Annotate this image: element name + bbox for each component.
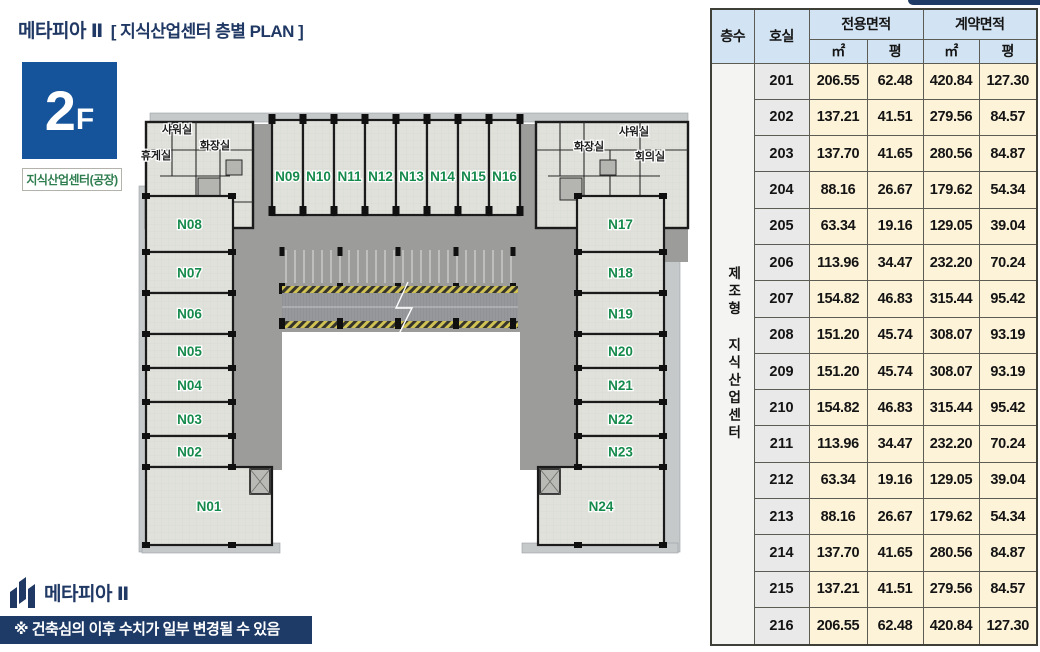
table-row: 211113.9634.47232.2070.24	[711, 426, 1037, 462]
table-row: 20563.3419.16129.0539.04	[711, 208, 1037, 244]
column	[331, 206, 338, 216]
room-label-N07: N07	[177, 266, 202, 281]
exclusive-m2-cell: 63.34	[809, 208, 867, 244]
room-label-N15: N15	[461, 169, 486, 184]
room-label-N24: N24	[589, 499, 614, 514]
room-label-N09: N09	[275, 169, 300, 184]
ramp-post	[395, 318, 401, 329]
column	[574, 542, 582, 548]
col-header-exclusive-pyeong: 평	[867, 39, 923, 63]
room-number-cell: 216	[754, 607, 809, 645]
room-number-cell: 203	[754, 136, 809, 172]
room-number-cell: 206	[754, 244, 809, 280]
facility-label-left-0: 샤워실	[162, 122, 192, 136]
column	[659, 365, 667, 371]
room-label-N12: N12	[368, 169, 393, 184]
table-row: 208151.2045.74308.0793.19	[711, 317, 1037, 353]
column	[228, 290, 236, 296]
ramp-post	[396, 247, 401, 256]
exclusive-pyeong-cell: 41.51	[867, 99, 923, 135]
room-label-N20: N20	[608, 344, 633, 359]
ramp-post	[279, 318, 285, 329]
column	[574, 399, 582, 405]
exclusive-pyeong-cell: 41.51	[867, 571, 923, 607]
col-header-exclusive-m2: ㎡	[809, 39, 867, 63]
facility-label-left-2: 휴게실	[141, 148, 171, 162]
contract-pyeong-cell: 84.57	[979, 99, 1037, 135]
contract-m2-cell: 308.07	[923, 353, 979, 389]
column	[142, 433, 150, 439]
exclusive-pyeong-cell: 46.83	[867, 390, 923, 426]
room-label-N19: N19	[608, 307, 633, 322]
exclusive-m2-cell: 113.96	[809, 426, 867, 462]
room-number-cell: 207	[754, 281, 809, 317]
column	[659, 464, 667, 470]
exclusive-m2-cell: 151.20	[809, 353, 867, 389]
table-row: 202137.2141.51279.5684.57	[711, 99, 1037, 135]
column	[142, 331, 150, 337]
table-row: 207154.8246.83315.4495.42	[711, 281, 1037, 317]
contract-m2-cell: 315.44	[923, 281, 979, 317]
column	[142, 542, 150, 548]
contract-m2-cell: 279.56	[923, 571, 979, 607]
col-header-contract-pyeong: 평	[979, 39, 1037, 63]
room-N13	[396, 120, 427, 215]
column	[517, 206, 524, 216]
room-number-cell: 211	[754, 426, 809, 462]
column	[300, 206, 307, 216]
column	[393, 206, 400, 216]
footer-logo-text: 메타피아 Ⅱ	[44, 579, 129, 606]
exclusive-pyeong-cell: 62.48	[867, 63, 923, 99]
exclusive-m2-cell: 137.21	[809, 99, 867, 135]
footer-logo: 메타피아 Ⅱ	[10, 577, 129, 608]
column	[574, 193, 582, 199]
room-number-cell: 209	[754, 353, 809, 389]
room-label-N01: N01	[197, 499, 222, 514]
table-row: 214137.7041.65280.5684.87	[711, 535, 1037, 571]
contract-pyeong-cell: 84.87	[979, 535, 1037, 571]
ramp-post	[510, 318, 516, 329]
room-label-N17: N17	[608, 217, 633, 232]
floor-type-vertical-label: 제조형 지식산업센터	[711, 63, 754, 645]
contract-pyeong-cell: 93.19	[979, 317, 1037, 353]
contract-pyeong-cell: 39.04	[979, 208, 1037, 244]
exclusive-pyeong-cell: 26.67	[867, 172, 923, 208]
column	[424, 206, 431, 216]
column	[142, 365, 150, 371]
exclusive-m2-cell: 63.34	[809, 462, 867, 498]
exclusive-m2-cell: 137.70	[809, 136, 867, 172]
contract-pyeong-cell: 127.30	[979, 63, 1037, 99]
contract-m2-cell: 315.44	[923, 390, 979, 426]
room-N12	[365, 120, 396, 215]
exclusive-pyeong-cell: 41.65	[867, 136, 923, 172]
column	[659, 433, 667, 439]
column	[393, 114, 400, 124]
room-label-N08: N08	[177, 217, 202, 232]
exclusive-m2-cell: 88.16	[809, 499, 867, 535]
room-label-N03: N03	[177, 412, 202, 427]
table-row: 206113.9634.47232.2070.24	[711, 244, 1037, 280]
column	[574, 249, 582, 255]
building-type-box: 지식산업센터(공장)	[22, 168, 122, 191]
contract-m2-cell: 179.62	[923, 499, 979, 535]
contract-pyeong-cell: 70.24	[979, 426, 1037, 462]
table-row: 21263.3419.16129.0539.04	[711, 462, 1037, 498]
exclusive-pyeong-cell: 19.16	[867, 208, 923, 244]
table-row: 209151.2045.74308.0793.19	[711, 353, 1037, 389]
column	[659, 331, 667, 337]
room-N16	[489, 120, 520, 215]
column	[455, 114, 462, 124]
column	[362, 114, 369, 124]
contract-m2-cell: 179.62	[923, 172, 979, 208]
page-title: 메타피아 Ⅱ[ 지식산업센터 층별 PLAN ]	[18, 16, 303, 43]
column	[142, 290, 150, 296]
elevator-right	[540, 469, 560, 494]
page: 메타피아 Ⅱ[ 지식산업센터 층별 PLAN ] 2 F 지식산업센터(공장)	[0, 0, 1040, 652]
contract-m2-cell: 280.56	[923, 535, 979, 571]
room-number-cell: 210	[754, 390, 809, 426]
room-number-cell: 202	[754, 99, 809, 135]
col-header-contract-m2: ㎡	[923, 39, 979, 63]
contract-m2-cell: 420.84	[923, 607, 979, 645]
page-title-brand: 메타피아 Ⅱ	[18, 21, 103, 42]
exclusive-pyeong-cell: 45.74	[867, 353, 923, 389]
col-header-floor: 층수	[711, 9, 754, 63]
column	[142, 464, 150, 470]
column	[574, 290, 582, 296]
facility-label-left-1: 화장실	[200, 138, 230, 152]
column	[300, 114, 307, 124]
room-number-cell: 208	[754, 317, 809, 353]
column	[574, 365, 582, 371]
contract-m2-cell: 232.20	[923, 426, 979, 462]
column	[228, 542, 236, 548]
column	[228, 433, 236, 439]
column	[424, 114, 431, 124]
column	[228, 399, 236, 405]
room-N11	[334, 120, 365, 215]
room-number-cell: 201	[754, 63, 809, 99]
col-header-room: 호실	[754, 9, 809, 63]
room-number-cell: 213	[754, 499, 809, 535]
exclusive-m2-cell: 151.20	[809, 317, 867, 353]
table-row: 210154.8246.83315.4495.42	[711, 390, 1037, 426]
room-label-N10: N10	[306, 169, 331, 184]
table-row: 215137.2141.51279.5684.57	[711, 571, 1037, 607]
exclusive-pyeong-cell: 62.48	[867, 607, 923, 645]
column	[574, 331, 582, 337]
exclusive-m2-cell: 154.82	[809, 281, 867, 317]
contract-pyeong-cell: 54.34	[979, 172, 1037, 208]
room-label-N11: N11	[337, 169, 362, 184]
column	[486, 206, 493, 216]
column	[228, 193, 236, 199]
contract-pyeong-cell: 54.34	[979, 499, 1037, 535]
col-header-contract-area: 계약면적	[923, 9, 1037, 39]
column	[574, 433, 582, 439]
contract-m2-cell: 279.56	[923, 99, 979, 135]
contract-m2-cell: 129.05	[923, 462, 979, 498]
exclusive-pyeong-cell: 34.47	[867, 244, 923, 280]
table-row: 20488.1626.67179.6254.34	[711, 172, 1037, 208]
column	[455, 206, 462, 216]
table-row: 제조형 지식산업센터201206.5562.48420.84127.30	[711, 63, 1037, 99]
page-title-plan: [ 지식산업센터 층별 PLAN ]	[111, 22, 304, 41]
room-N14	[427, 120, 458, 215]
contract-m2-cell: 129.05	[923, 208, 979, 244]
column	[228, 365, 236, 371]
facility-label-right-2: 회의실	[635, 149, 665, 163]
elevator-left	[250, 469, 270, 494]
table-row: 216206.5562.48420.84127.30	[711, 607, 1037, 645]
exclusive-m2-cell: 206.55	[809, 607, 867, 645]
exclusive-m2-cell: 88.16	[809, 172, 867, 208]
room-label-N04: N04	[177, 378, 202, 393]
column	[659, 290, 667, 296]
room-label-N18: N18	[608, 266, 633, 281]
column	[362, 206, 369, 216]
room-number-cell: 205	[754, 208, 809, 244]
column	[659, 542, 667, 548]
room-number-cell: 204	[754, 172, 809, 208]
floor-plan: N09N10N11N12N13N14N15N16N08N07N06N05N04N…	[138, 110, 696, 562]
room-N10	[303, 120, 334, 215]
contract-m2-cell: 280.56	[923, 136, 979, 172]
ramp-post	[511, 247, 516, 256]
contract-pyeong-cell: 84.57	[979, 571, 1037, 607]
ramp-post	[337, 318, 343, 329]
contract-m2-cell: 420.84	[923, 63, 979, 99]
exclusive-pyeong-cell: 19.16	[867, 462, 923, 498]
column	[486, 114, 493, 124]
exclusive-pyeong-cell: 26.67	[867, 499, 923, 535]
exclusive-m2-cell: 137.21	[809, 571, 867, 607]
exclusive-m2-cell: 113.96	[809, 244, 867, 280]
exclusive-pyeong-cell: 34.47	[867, 426, 923, 462]
column	[659, 193, 667, 199]
top-right-partial-bar	[908, 0, 1040, 5]
exclusive-pyeong-cell: 45.74	[867, 317, 923, 353]
column	[142, 399, 150, 405]
facility-label-right-0: 화장실	[574, 139, 604, 153]
column	[228, 249, 236, 255]
exclusive-m2-cell: 206.55	[809, 63, 867, 99]
room-label-N14: N14	[430, 169, 455, 184]
contract-m2-cell: 308.07	[923, 317, 979, 353]
contract-m2-cell: 232.20	[923, 244, 979, 280]
area-table: 층수 호실 전용면적 계약면적 ㎡ 평 ㎡ 평 제조형 지식산업센터201206…	[710, 8, 1036, 646]
col-header-exclusive-area: 전용면적	[809, 9, 923, 39]
exclusive-pyeong-cell: 46.83	[867, 281, 923, 317]
column	[142, 193, 150, 199]
contract-pyeong-cell: 84.87	[979, 136, 1037, 172]
room-number-cell: 212	[754, 462, 809, 498]
exclusive-m2-cell: 154.82	[809, 390, 867, 426]
room-label-N22: N22	[608, 412, 633, 427]
contract-pyeong-cell: 70.24	[979, 244, 1037, 280]
column	[269, 206, 276, 216]
column	[574, 464, 582, 470]
room-label-N23: N23	[608, 445, 633, 460]
contract-pyeong-cell: 127.30	[979, 607, 1037, 645]
floor-number: 2	[45, 83, 76, 139]
column	[659, 249, 667, 255]
column	[228, 464, 236, 470]
exclusive-m2-cell: 137.70	[809, 535, 867, 571]
ramp-post	[453, 318, 459, 329]
room-N09	[272, 120, 303, 215]
room-label-N16: N16	[492, 169, 517, 184]
ramp-post	[338, 247, 343, 256]
contract-pyeong-cell: 95.42	[979, 281, 1037, 317]
table-row: 203137.7041.65280.5684.87	[711, 136, 1037, 172]
floor-badge: 2 F	[22, 62, 117, 159]
floor-suffix: F	[76, 103, 94, 137]
column	[228, 331, 236, 337]
disclaimer-bar: ※ 건축심의 이후 수치가 일부 변경될 수 있음	[0, 616, 312, 644]
room-label-N21: N21	[608, 378, 633, 393]
column	[269, 114, 276, 124]
contract-pyeong-cell: 93.19	[979, 353, 1037, 389]
room-label-N06: N06	[177, 307, 202, 322]
contract-pyeong-cell: 95.42	[979, 390, 1037, 426]
column	[331, 114, 338, 124]
column	[659, 399, 667, 405]
room-N15	[458, 120, 489, 215]
room-number-cell: 215	[754, 571, 809, 607]
table-row: 21388.1626.67179.6254.34	[711, 499, 1037, 535]
room-label-N13: N13	[399, 169, 424, 184]
exclusive-pyeong-cell: 41.65	[867, 535, 923, 571]
facility-label-right-1: 샤워실	[619, 124, 649, 138]
room-label-N05: N05	[177, 344, 202, 359]
column	[142, 249, 150, 255]
column	[517, 114, 524, 124]
ramp-post	[454, 247, 459, 256]
contract-pyeong-cell: 39.04	[979, 462, 1037, 498]
ramp-post	[280, 247, 285, 256]
room-label-N02: N02	[177, 445, 202, 460]
room-number-cell: 214	[754, 535, 809, 571]
metapia-logo-icon	[10, 577, 37, 608]
